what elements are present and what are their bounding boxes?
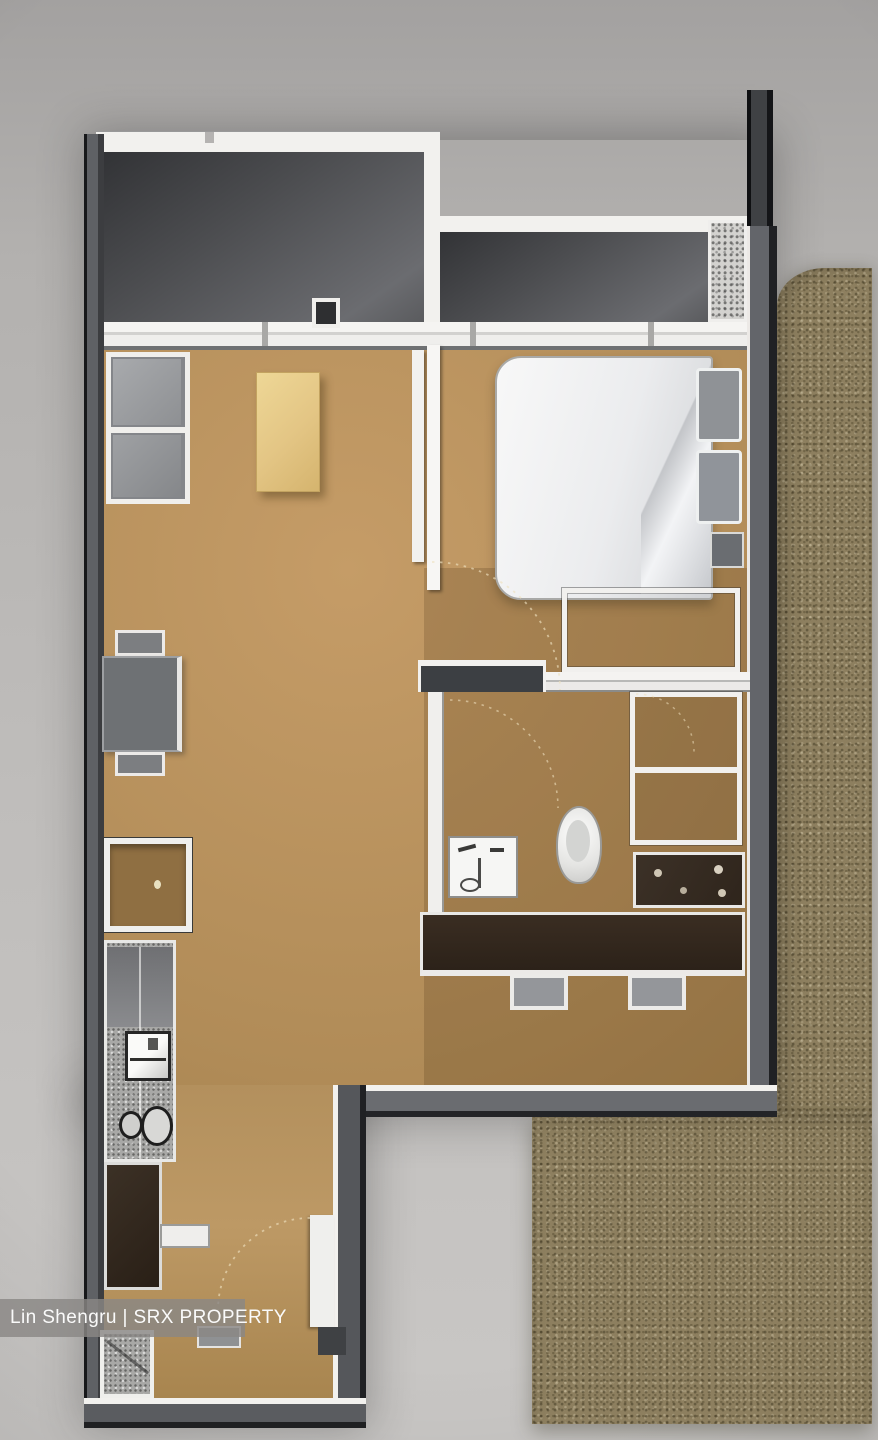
floorplan-image: Lin Shengru | SRX PROPERTY	[0, 0, 878, 1440]
door-swing-arc	[218, 1218, 310, 1310]
door-swing-arc	[432, 562, 560, 690]
door-swing-arc	[636, 694, 694, 752]
watermark: Lin Shengru | SRX PROPERTY	[0, 1299, 245, 1337]
door-swing-arcs	[0, 0, 878, 1440]
watermark-text: Lin Shengru | SRX PROPERTY	[10, 1307, 287, 1329]
door-swing-arc	[450, 700, 558, 808]
